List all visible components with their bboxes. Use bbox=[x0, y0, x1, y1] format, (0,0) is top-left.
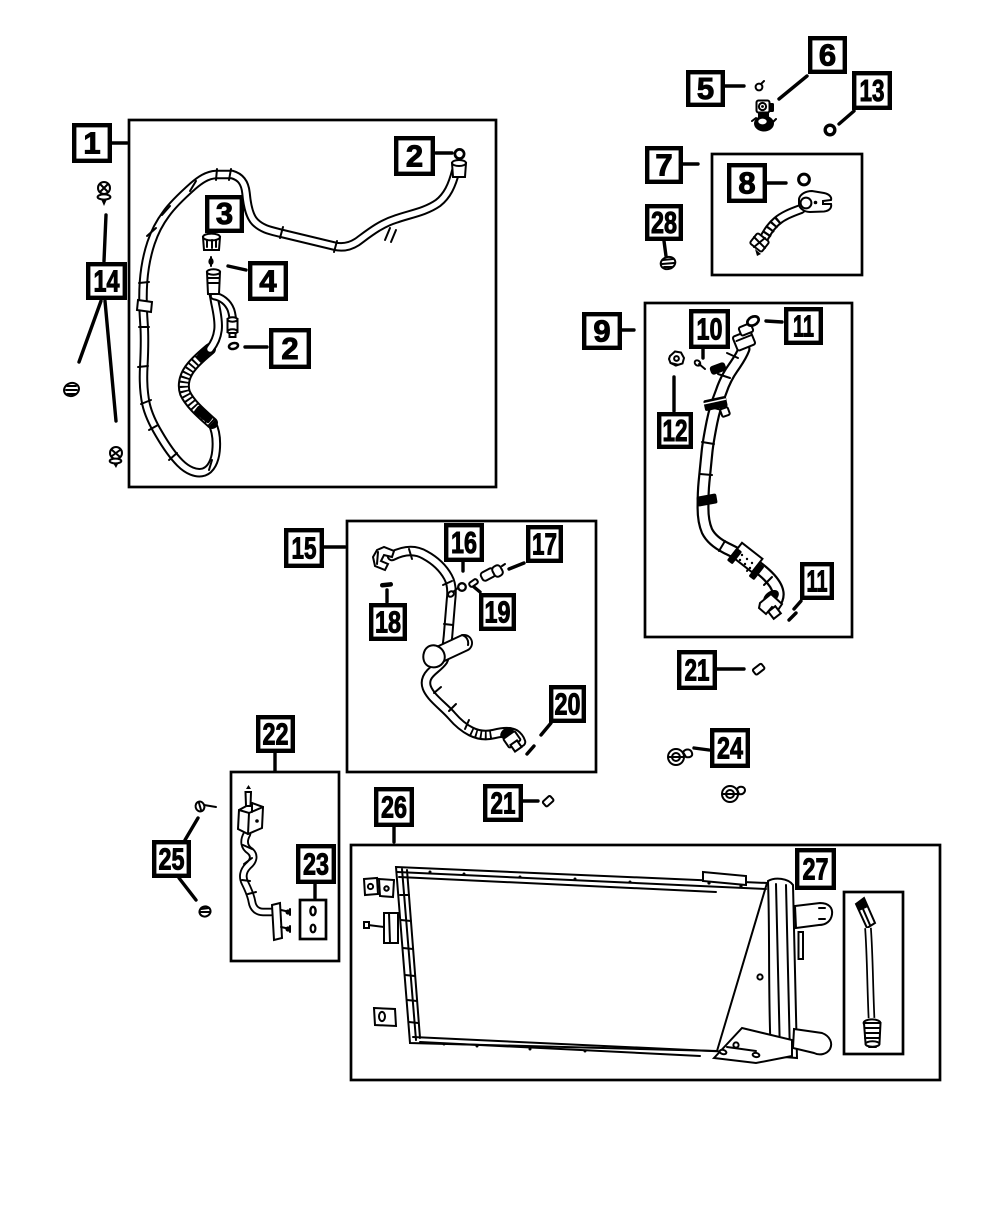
svg-text:15: 15 bbox=[292, 531, 317, 566]
svg-text:21: 21 bbox=[491, 786, 516, 821]
svg-text:27: 27 bbox=[803, 852, 829, 887]
svg-text:2: 2 bbox=[406, 139, 423, 174]
svg-text:20: 20 bbox=[555, 687, 581, 722]
svg-text:19: 19 bbox=[485, 595, 511, 630]
svg-text:5: 5 bbox=[697, 71, 714, 106]
svg-text:24: 24 bbox=[717, 731, 744, 766]
svg-text:16: 16 bbox=[451, 525, 477, 560]
svg-text:28: 28 bbox=[651, 205, 677, 240]
svg-text:3: 3 bbox=[216, 196, 233, 231]
svg-text:11: 11 bbox=[793, 309, 814, 344]
svg-text:11: 11 bbox=[807, 564, 828, 599]
svg-text:25: 25 bbox=[159, 842, 185, 877]
svg-text:8: 8 bbox=[738, 166, 755, 201]
svg-text:9: 9 bbox=[593, 314, 610, 349]
svg-text:21: 21 bbox=[685, 653, 710, 688]
svg-text:4: 4 bbox=[259, 264, 277, 299]
svg-text:17: 17 bbox=[532, 527, 557, 562]
svg-text:7: 7 bbox=[655, 148, 672, 183]
svg-text:12: 12 bbox=[663, 413, 688, 448]
svg-text:14: 14 bbox=[94, 264, 121, 299]
svg-text:13: 13 bbox=[860, 73, 885, 108]
svg-text:2: 2 bbox=[281, 331, 298, 366]
svg-text:10: 10 bbox=[697, 312, 723, 347]
svg-text:22: 22 bbox=[263, 717, 289, 752]
svg-text:23: 23 bbox=[303, 847, 329, 882]
svg-text:1: 1 bbox=[83, 126, 100, 161]
svg-text:6: 6 bbox=[819, 38, 836, 73]
svg-text:26: 26 bbox=[381, 790, 407, 825]
svg-text:18: 18 bbox=[375, 605, 401, 640]
